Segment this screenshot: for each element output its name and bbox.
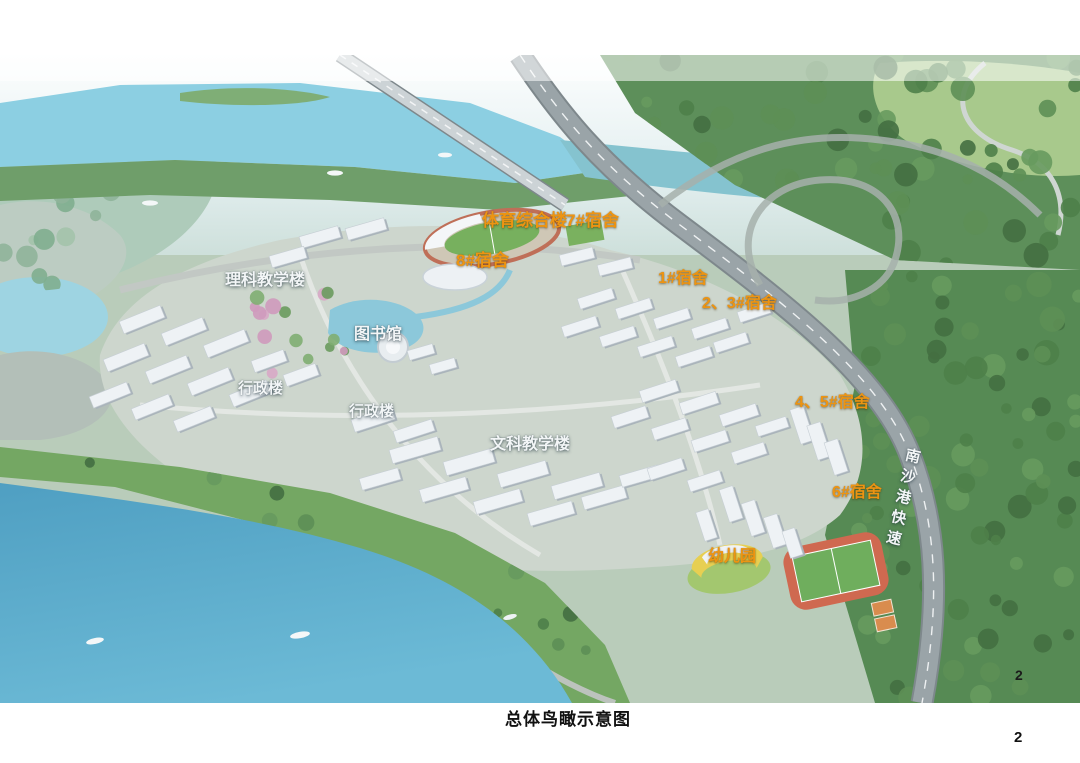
rendering-scene xyxy=(0,55,1080,703)
page-number-on-image: 2 xyxy=(1015,667,1023,683)
label-kindergarten: 幼儿园 xyxy=(708,548,756,566)
horizon-haze xyxy=(0,55,1080,81)
label-admin-central: 行政楼 xyxy=(349,404,394,421)
page-number: 2 xyxy=(1014,729,1022,746)
label-library: 图书馆 xyxy=(354,326,402,344)
label-admin-west: 行政楼 xyxy=(238,381,283,398)
figure-caption: 总体鸟瞰示意图 xyxy=(505,705,631,730)
label-sports-complex: 体育综合楼 xyxy=(482,212,567,231)
label-arts-teaching: 文科教学楼 xyxy=(490,436,570,454)
label-dorm-1: 1#宿舍 xyxy=(658,270,708,288)
campus-aerial-rendering xyxy=(0,55,1080,703)
label-dorm-7: 7#宿舍 xyxy=(566,212,619,231)
label-dorm-4-5: 4、5#宿舍 xyxy=(795,394,870,412)
label-dorm-8: 8#宿舍 xyxy=(456,252,509,271)
label-dorm-6: 6#宿舍 xyxy=(832,484,882,502)
label-science-teaching: 理科教学楼 xyxy=(225,272,305,290)
slide-page: 体育综合楼 7#宿舍 8#宿舍 理科教学楼 1#宿舍 2、3#宿舍 图书馆 行政… xyxy=(0,0,1080,763)
label-dorm-2-3: 2、3#宿舍 xyxy=(702,295,777,313)
